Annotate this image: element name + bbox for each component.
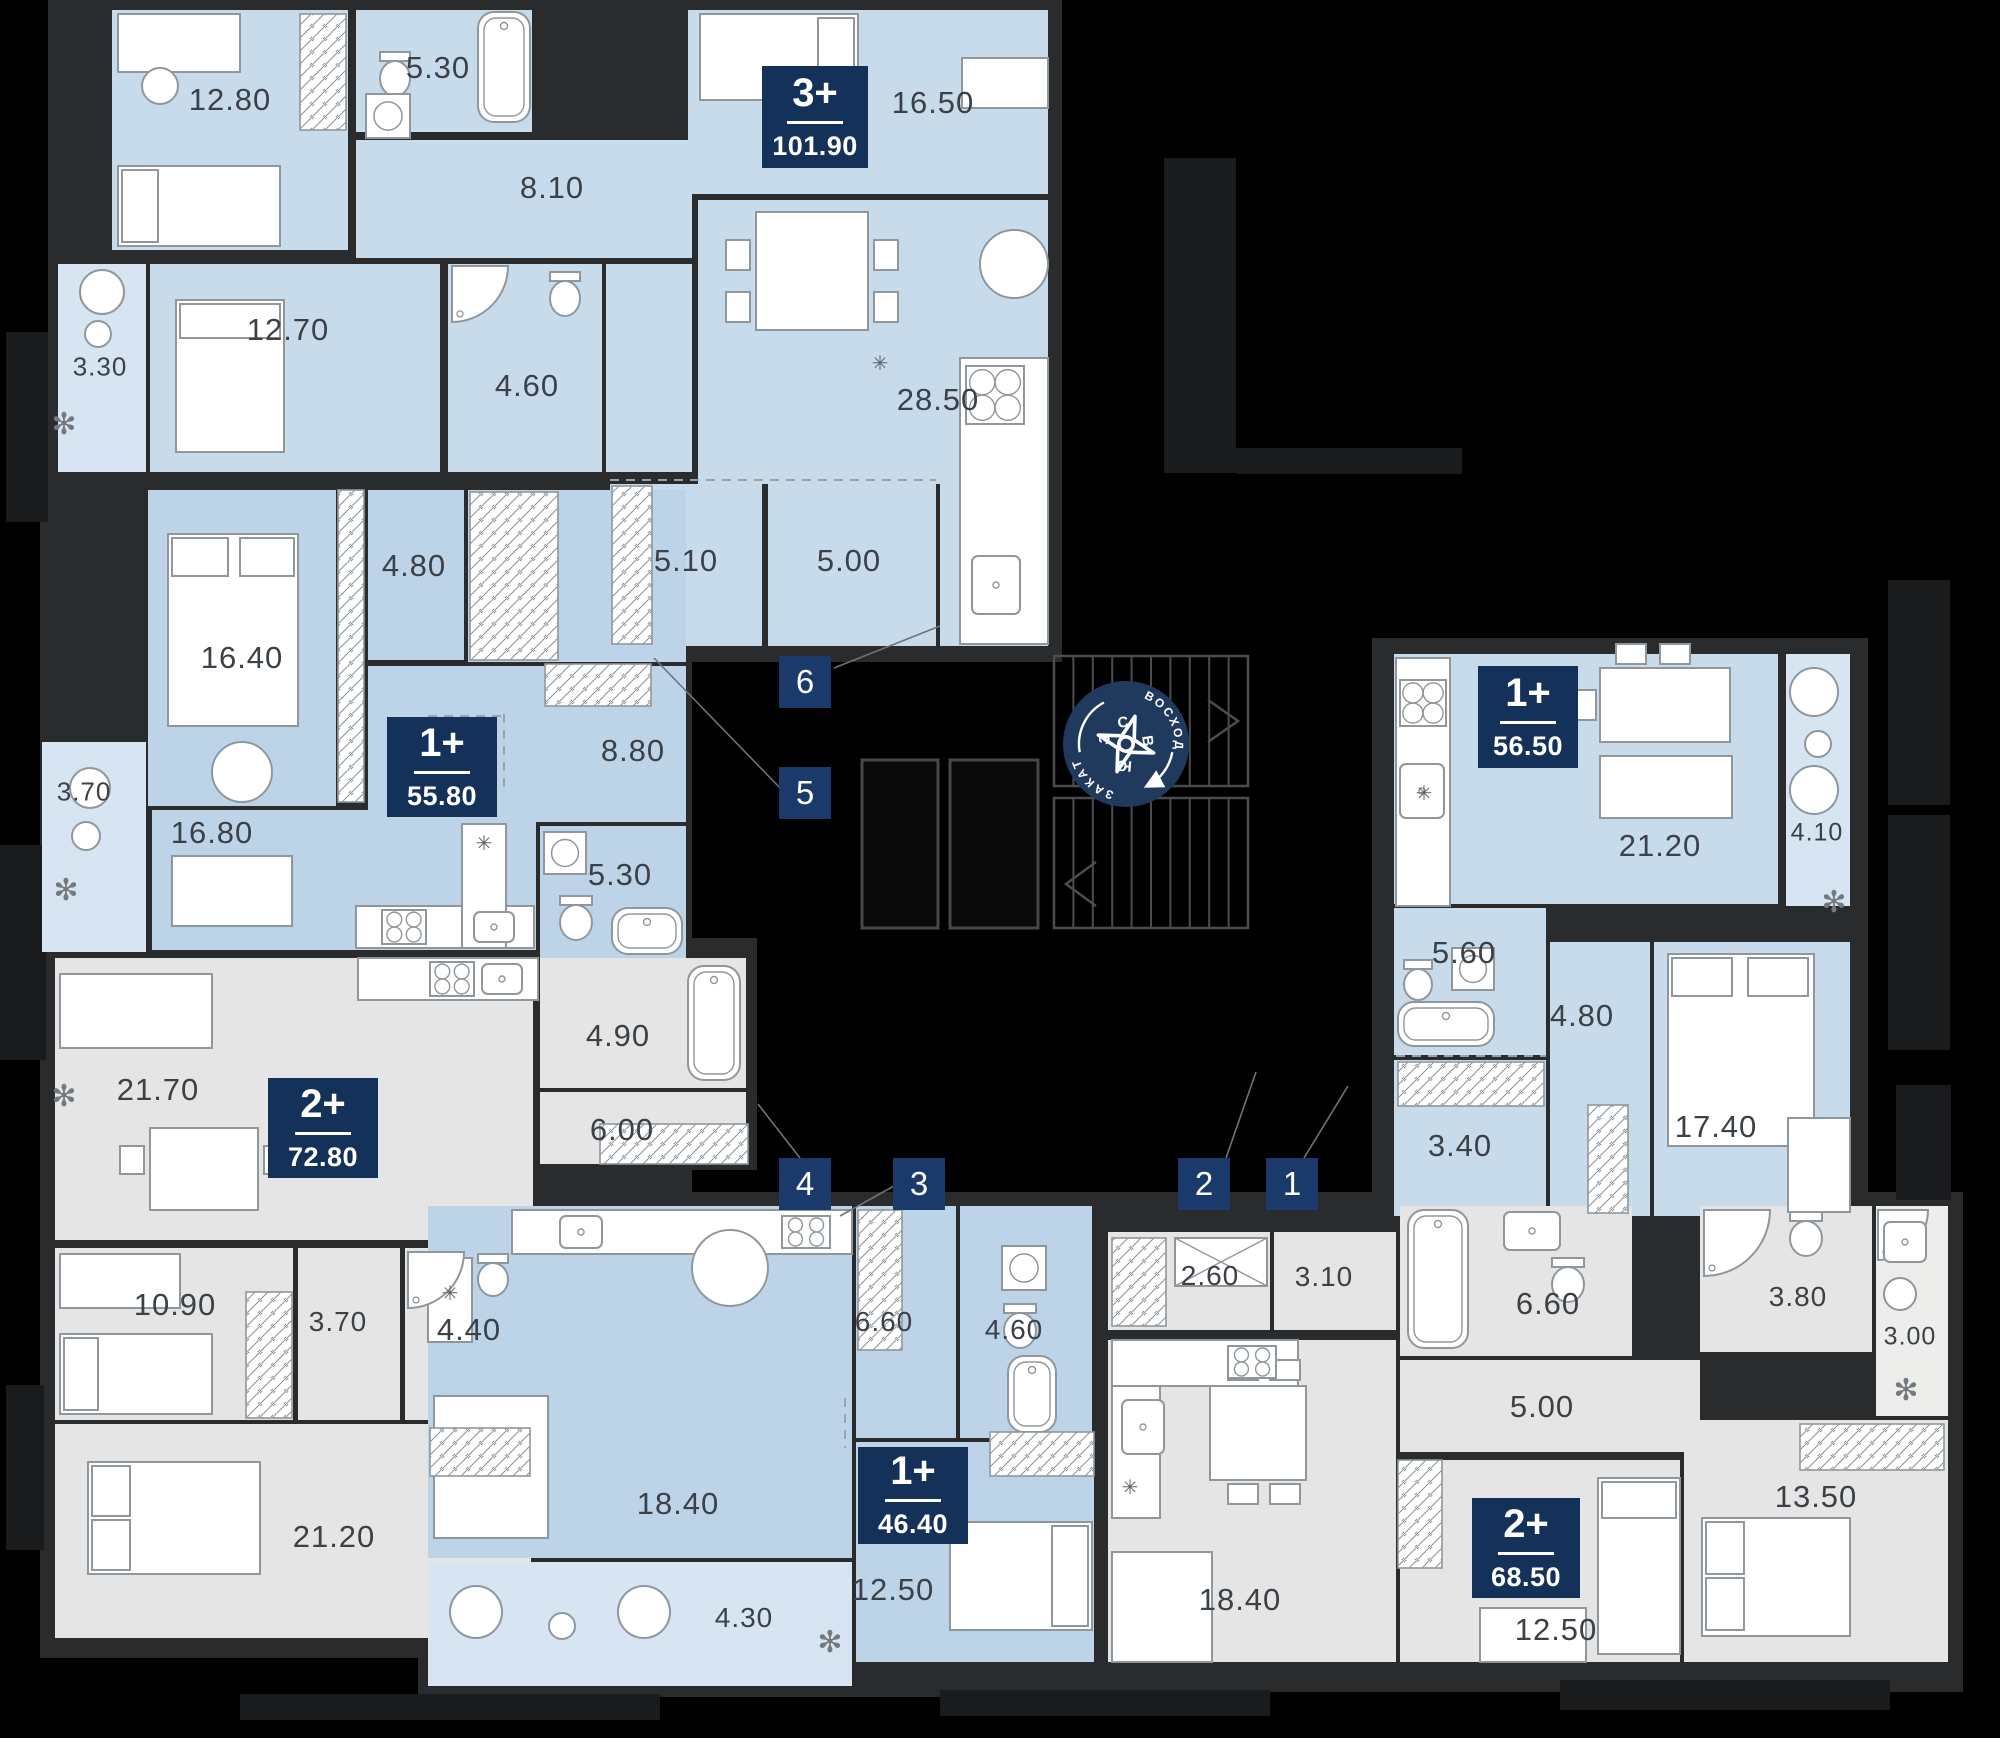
furniture-circle — [618, 1586, 670, 1638]
unit-number-marker: 2 — [1178, 1158, 1230, 1210]
plant-icon: ✻ — [817, 1626, 842, 1659]
apartment-total-area: 68.50 — [1491, 1562, 1561, 1593]
room-area-label: 21.20 — [1619, 828, 1702, 864]
apartment-badge: 1+46.40 — [858, 1447, 968, 1544]
unit-number: 1 — [1283, 1165, 1301, 1203]
stair-direction-arrow — [1066, 862, 1096, 906]
toilet — [478, 1254, 508, 1296]
wardrobe-hatch — [545, 664, 651, 706]
apartment-badge: 2+68.50 — [1472, 1498, 1580, 1598]
elevator-shaft — [950, 760, 1038, 928]
fixture — [1400, 680, 1446, 726]
shower-cabin — [452, 266, 508, 322]
wardrobe-hatch — [470, 492, 558, 660]
toilet — [550, 272, 580, 316]
wardrobe-hatch — [338, 490, 364, 802]
unit-number: 5 — [796, 774, 814, 812]
furniture-rect — [172, 856, 292, 926]
room-area-label: 6.60 — [855, 1306, 914, 1338]
furniture-rect — [92, 1466, 130, 1516]
room-area-label: 16.50 — [892, 85, 975, 121]
fixture — [1504, 1212, 1560, 1250]
apartment-total-area: 55.80 — [407, 781, 477, 812]
wardrobe-hatch — [1398, 1062, 1544, 1106]
elevator-shaft — [862, 760, 938, 928]
room-area-label: 17.40 — [1675, 1109, 1758, 1145]
furniture-rect — [1788, 1118, 1850, 1212]
furniture-rect — [1052, 1526, 1088, 1626]
furniture-rect — [756, 212, 868, 330]
room-area-label: 5.30 — [588, 857, 652, 893]
unit-number: 6 — [796, 663, 814, 701]
marker-leader-line — [1226, 1072, 1256, 1158]
marker-leader-line — [654, 658, 782, 790]
furniture-rect — [172, 538, 228, 576]
room-area-label: 12.70 — [247, 312, 330, 348]
floor-plan-canvas: ✻✻✻✻✻✻✳✳✳✳✳ С В Ю З ВОСХОД ЗАКАТ 12.805.… — [0, 0, 2000, 1738]
apartment-total-area: 72.80 — [288, 1142, 358, 1173]
fixture — [478, 1263, 508, 1296]
badge-divider — [1500, 721, 1556, 724]
apartment-total-area: 101.90 — [772, 131, 858, 162]
sink — [1122, 1400, 1164, 1454]
room-area-label: 12.50 — [1515, 1612, 1598, 1648]
room-area-label: 18.40 — [1199, 1582, 1282, 1618]
fixture — [452, 266, 508, 322]
furniture-rect — [118, 14, 240, 72]
room-area-label: 3.10 — [1295, 1261, 1354, 1293]
stove-hob — [1400, 680, 1446, 726]
room-area-label: 4.80 — [1550, 998, 1614, 1034]
room-area-label: 3.70 — [309, 1306, 368, 1338]
furniture-rect — [1270, 1484, 1300, 1504]
furniture-rect — [1706, 1578, 1744, 1630]
stove-hob — [782, 1216, 830, 1248]
furniture-rect — [1602, 1482, 1676, 1518]
furniture-rect — [1660, 644, 1690, 664]
fixture — [1122, 1400, 1164, 1454]
furniture-circle — [450, 1586, 502, 1638]
furniture-rect — [1748, 958, 1808, 996]
fixture — [612, 908, 682, 954]
washing-machine — [1002, 1246, 1046, 1290]
furniture-circle — [72, 822, 100, 850]
furniture-circle — [142, 68, 178, 104]
fixture — [1790, 1212, 1822, 1221]
fixture — [1002, 1246, 1046, 1290]
marker-leader-line — [834, 626, 940, 668]
bathtub — [478, 12, 530, 122]
compass-rose: С В Ю З ВОСХОД ЗАКАТ — [1052, 670, 1200, 818]
apartment-type-label: 3+ — [792, 73, 838, 113]
toilet — [1790, 1212, 1822, 1256]
furniture-rect — [240, 538, 294, 576]
apartment-type-label: 1+ — [1505, 673, 1551, 713]
furniture-rect — [120, 1146, 144, 1174]
wardrobe-hatch — [1112, 1238, 1166, 1326]
fridge-icon: ✳ — [1122, 1477, 1139, 1499]
room-area-label: 8.80 — [601, 733, 665, 769]
wardrobe-hatch — [612, 486, 652, 644]
wardrobe-hatch — [430, 1428, 530, 1476]
toilet — [1404, 960, 1432, 1000]
sink — [1504, 1212, 1560, 1250]
fixture — [1404, 960, 1432, 969]
furniture-rect — [874, 240, 898, 270]
furniture-rect — [150, 1128, 258, 1210]
room-area-label: 4.10 — [1791, 819, 1844, 848]
furniture-rect — [122, 170, 158, 242]
unit-number: 2 — [1195, 1165, 1213, 1203]
room-area-label: 6.00 — [590, 1112, 654, 1148]
compass-circle — [1063, 681, 1189, 807]
apartment-total-area: 46.40 — [878, 1509, 948, 1540]
room-area-label: 3.70 — [57, 777, 112, 808]
furniture-circle — [1805, 731, 1831, 757]
room-area-label: 16.80 — [171, 815, 254, 851]
sink — [1884, 1222, 1926, 1262]
furniture-rect — [1600, 756, 1732, 818]
furniture-rect — [726, 240, 750, 270]
furniture-rect — [1706, 1522, 1744, 1574]
fixture — [1552, 1258, 1584, 1267]
furniture-rect — [60, 974, 212, 1048]
wardrobe-hatch — [246, 1292, 292, 1418]
wardrobe-hatch — [1800, 1424, 1944, 1470]
unit-number-marker: 3 — [893, 1158, 945, 1210]
apartment-type-label: 2+ — [300, 1084, 346, 1124]
furniture-rect — [64, 1338, 98, 1410]
bathtub — [1398, 1002, 1494, 1046]
washing-machine — [544, 832, 586, 874]
apartment-badge: 3+101.90 — [762, 66, 868, 168]
room-area-label: 12.80 — [189, 82, 272, 118]
room-area-label: 4.90 — [586, 1018, 650, 1054]
furniture-rect — [1228, 1484, 1258, 1504]
stove-hob — [1228, 1346, 1276, 1378]
fridge-icon: ✳ — [476, 833, 493, 855]
fixture — [366, 94, 410, 138]
fixture — [482, 964, 522, 994]
shower-cabin — [1704, 1210, 1770, 1276]
fixtures-overlay: ✻✻✻✻✻✻✳✳✳✳✳ — [0, 0, 2000, 1738]
room-area-label: 5.60 — [1432, 935, 1496, 971]
bathtub — [688, 966, 740, 1080]
fridge-icon: ✳ — [1416, 783, 1433, 805]
furniture-circle — [692, 1230, 768, 1306]
furniture-rect — [1672, 958, 1732, 996]
furniture-circle — [1884, 1278, 1916, 1310]
toilet — [560, 896, 592, 940]
furniture-rect — [1600, 668, 1730, 742]
room-area-label: 3.40 — [1428, 1128, 1492, 1164]
fixture — [550, 272, 580, 281]
stair-direction-arrow — [1208, 700, 1238, 742]
furniture-rect — [874, 292, 898, 322]
room-area-label: 4.40 — [437, 1312, 501, 1348]
furniture-circle — [80, 270, 124, 314]
room-area-label: 5.00 — [817, 543, 881, 579]
room-area-label: 6.60 — [1516, 1286, 1580, 1322]
unit-number: 3 — [910, 1165, 928, 1203]
wardrobe-hatch — [1588, 1105, 1628, 1213]
fixture — [478, 1254, 508, 1263]
bathtub — [1408, 1210, 1468, 1348]
sink — [972, 556, 1020, 614]
wardrobe-hatch — [1398, 1460, 1442, 1568]
room-area-label: 28.50 — [897, 382, 980, 418]
fixture — [972, 556, 1020, 614]
room-area-label: 12.50 — [852, 1572, 935, 1608]
unit-number-marker: 6 — [779, 656, 831, 708]
furniture-rect — [1616, 644, 1646, 664]
room-area-label: 2.60 — [1181, 1260, 1240, 1292]
fixture — [550, 281, 580, 316]
furniture-circle — [980, 230, 1048, 298]
room-area-label: 4.30 — [715, 1602, 774, 1634]
room-area-label: 18.40 — [637, 1486, 720, 1522]
fixture — [478, 12, 530, 122]
room-area-label: 13.50 — [1775, 1479, 1858, 1515]
unit-number-marker: 1 — [1266, 1158, 1318, 1210]
room-area-label: 5.30 — [406, 50, 470, 86]
wardrobe-hatch — [990, 1432, 1094, 1476]
badge-divider — [787, 121, 843, 124]
apartment-badge: 2+72.80 — [268, 1078, 378, 1178]
marker-leader-line — [1304, 1086, 1348, 1158]
room-area-label: 4.60 — [985, 1314, 1044, 1346]
badge-divider — [885, 1499, 941, 1502]
room-area-label: 3.30 — [73, 352, 128, 383]
washing-machine — [366, 94, 410, 138]
bathtub — [1008, 1356, 1056, 1432]
apartment-type-label: 1+ — [890, 1451, 936, 1491]
fixture — [1004, 1304, 1036, 1313]
furniture-circle — [212, 742, 272, 802]
sink — [474, 912, 514, 942]
fixture — [560, 905, 592, 940]
furniture-rect — [726, 292, 750, 322]
apartment-badge: 1+56.50 — [1478, 666, 1578, 768]
fixture — [1408, 1210, 1468, 1348]
apartment-type-label: 1+ — [419, 723, 465, 763]
room-area-label: 4.80 — [382, 548, 446, 584]
bathtub — [612, 908, 682, 954]
plant-icon: ✻ — [51, 1080, 76, 1113]
apartment-total-area: 56.50 — [1493, 731, 1563, 762]
badge-divider — [295, 1132, 351, 1135]
room-area-label: 10.90 — [134, 1287, 217, 1323]
room-area-label: 3.80 — [1769, 1281, 1828, 1313]
room-area-label: 8.10 — [520, 170, 584, 206]
fixture — [474, 912, 514, 942]
furniture-circle — [1790, 766, 1838, 814]
marker-leader-line — [758, 1104, 800, 1158]
badge-divider — [1498, 1552, 1554, 1555]
fixture — [1884, 1222, 1926, 1262]
fixture — [544, 832, 586, 874]
fixture — [1404, 969, 1432, 1000]
plant-icon: ✻ — [53, 874, 78, 907]
fixture — [560, 1216, 602, 1248]
fridge-icon: ✳ — [872, 353, 889, 375]
stove-hob — [430, 962, 474, 996]
sink — [560, 1216, 602, 1248]
furniture-rect — [1112, 1552, 1212, 1662]
furniture-rect — [1576, 690, 1596, 720]
unit-number-marker: 5 — [779, 767, 831, 819]
room-area-label: 5.10 — [654, 543, 718, 579]
fixture — [560, 896, 592, 905]
plant-icon: ✻ — [51, 408, 76, 441]
furniture-rect — [962, 58, 1048, 108]
furniture-rect — [1210, 1386, 1306, 1480]
apartment-type-label: 2+ — [1503, 1504, 1549, 1544]
stove-hob — [382, 910, 426, 944]
sink — [482, 964, 522, 994]
compass-south-label: Ю — [1116, 756, 1133, 774]
room-area-label: 16.40 — [201, 640, 284, 676]
fixture — [1790, 1221, 1822, 1256]
fridge-icon: ✳ — [442, 1283, 459, 1305]
unit-number-marker: 4 — [779, 1158, 831, 1210]
furniture-circle — [1790, 668, 1838, 716]
furniture-circle — [549, 1613, 575, 1639]
room-area-label: 3.00 — [1884, 1323, 1937, 1352]
room-area-label: 5.00 — [1510, 1389, 1574, 1425]
wardrobe-hatch — [300, 14, 346, 130]
plant-icon: ✻ — [1893, 1374, 1918, 1407]
room-area-label: 4.60 — [495, 368, 559, 404]
room-area-label: 21.70 — [117, 1072, 200, 1108]
plant-icon: ✻ — [1821, 886, 1846, 919]
apartment-badge: 1+55.80 — [387, 717, 497, 817]
room-area-label: 21.20 — [293, 1519, 376, 1555]
furniture-rect — [92, 1520, 130, 1570]
unit-number: 4 — [796, 1165, 814, 1203]
badge-divider — [414, 771, 470, 774]
furniture-circle — [85, 321, 111, 347]
